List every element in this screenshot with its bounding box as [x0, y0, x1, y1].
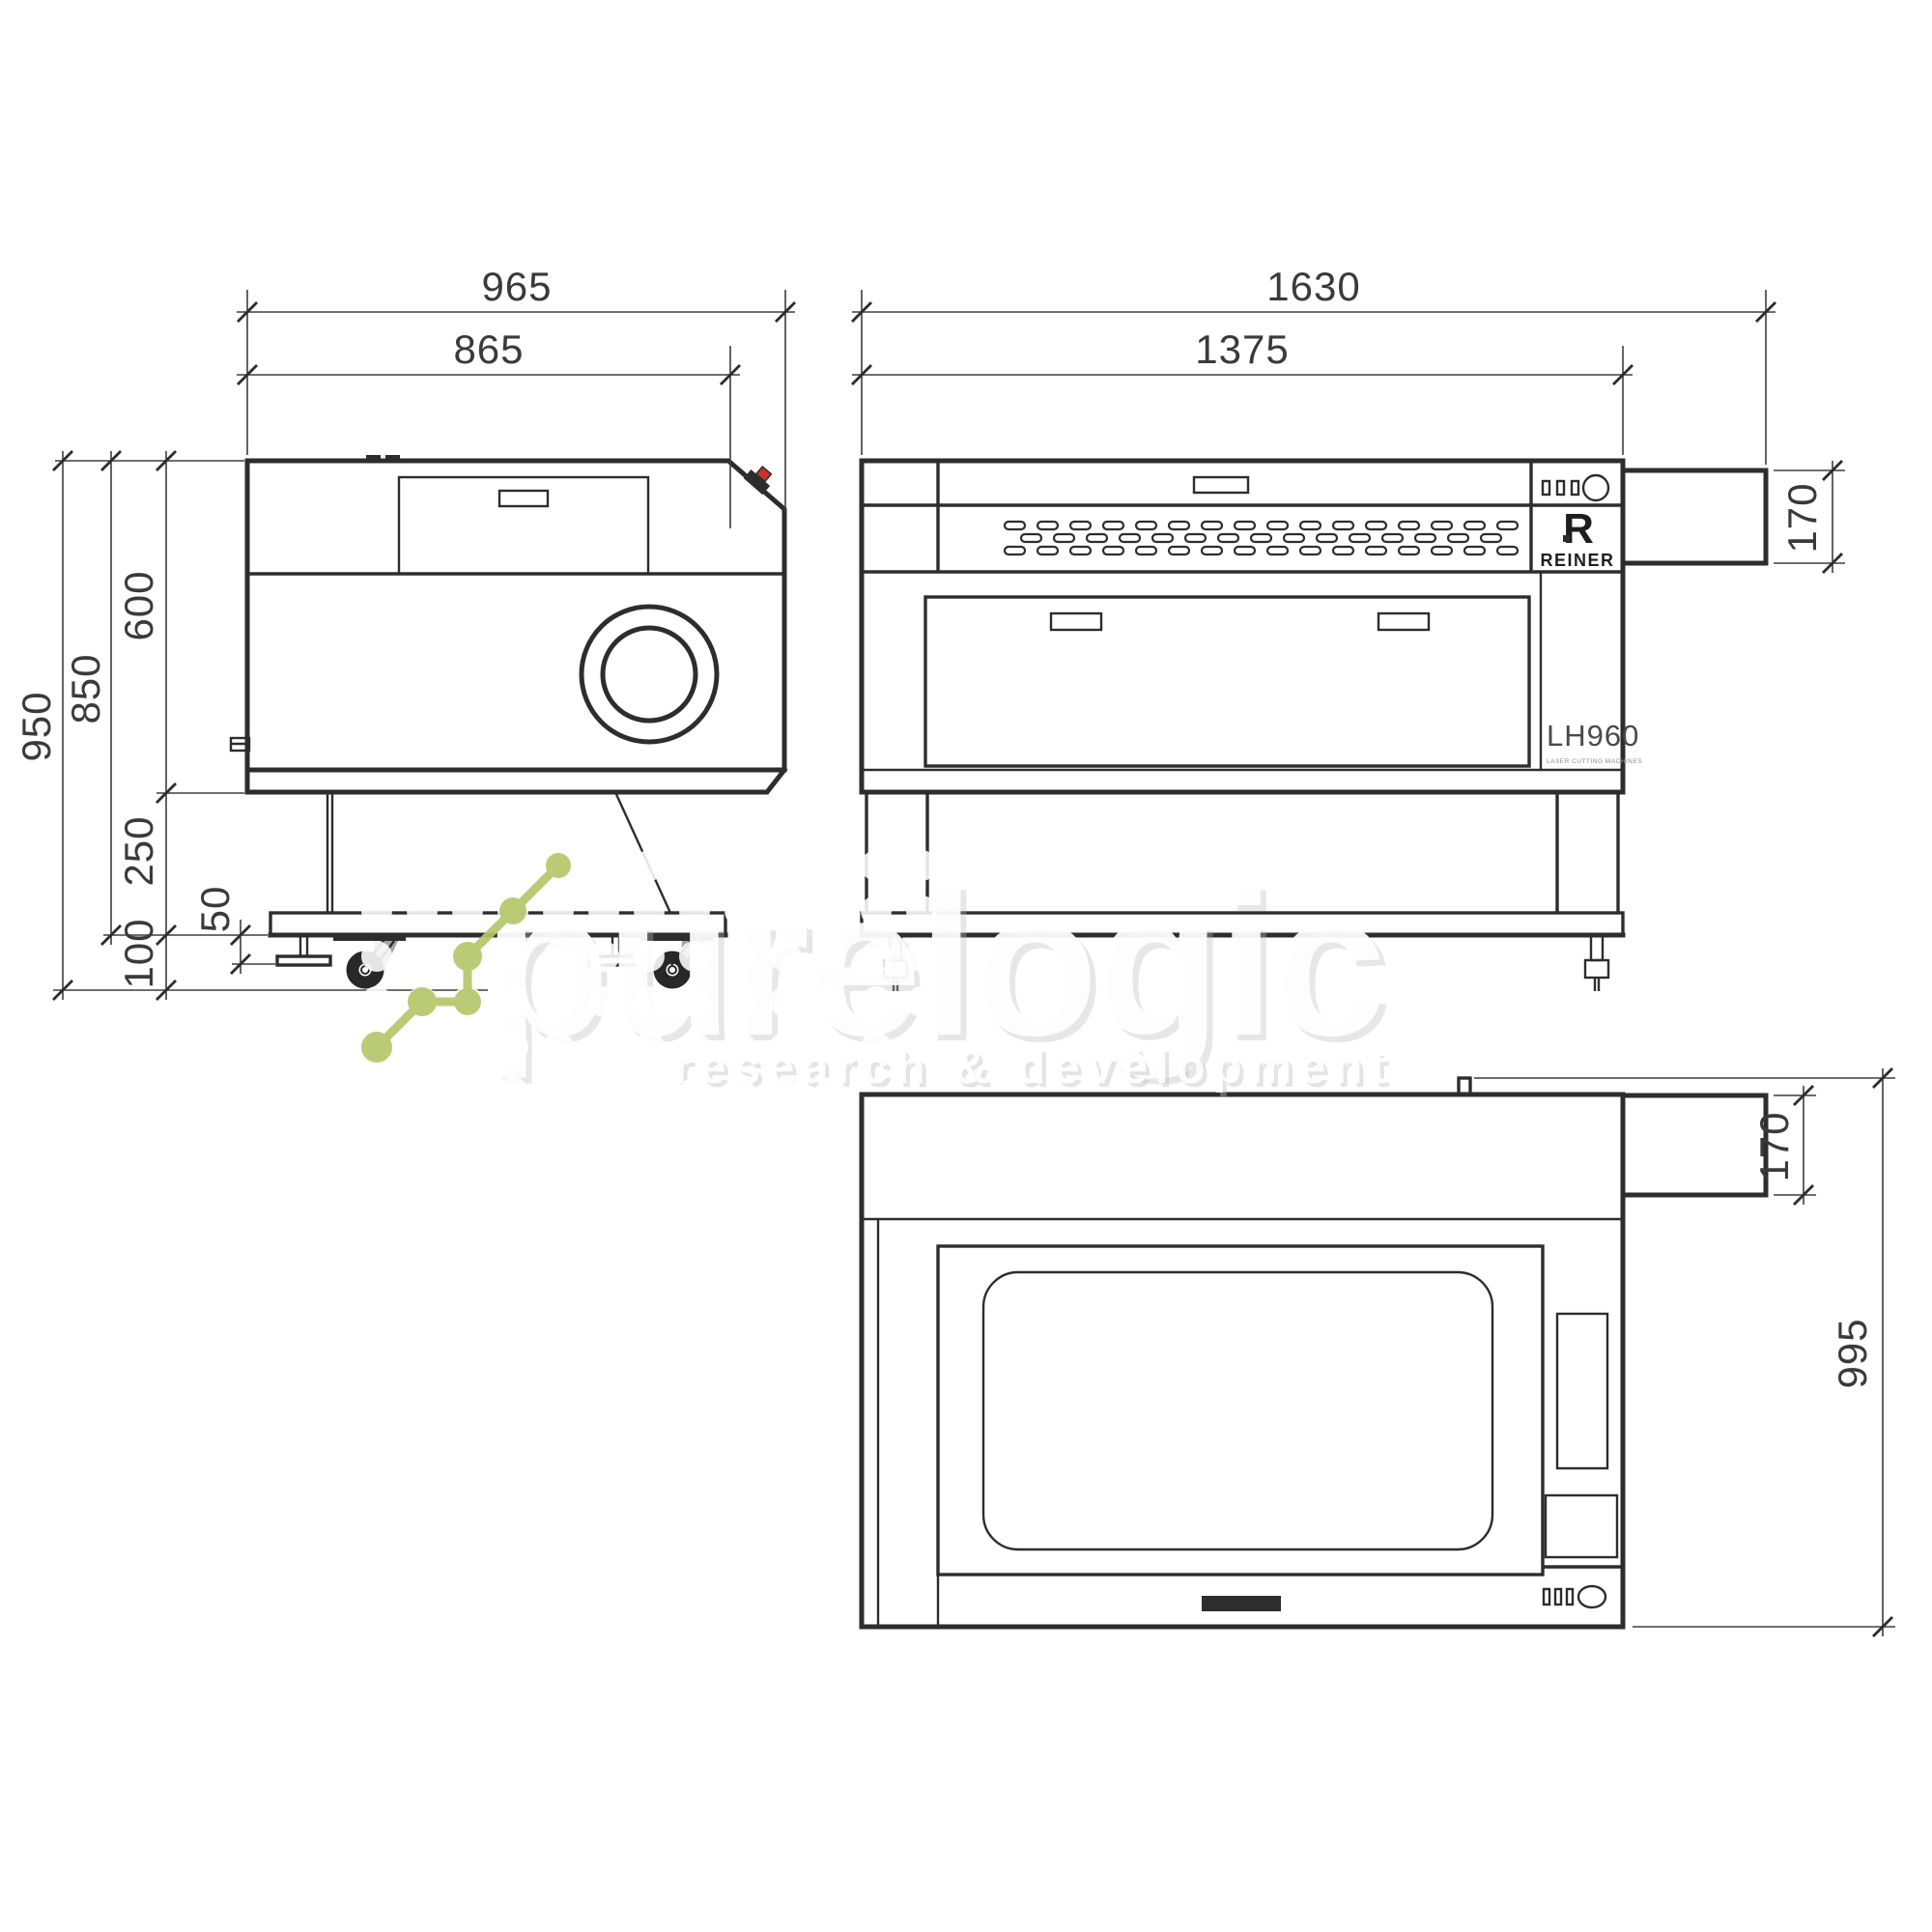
- watermark: purelogic purelogic research & developme…: [361, 846, 1451, 1108]
- top-lid-window: [983, 1272, 1492, 1549]
- dim-front-width-total: 1630: [1266, 264, 1360, 309]
- dim-side-width-total: 965: [481, 264, 552, 309]
- side-front-leg: [327, 792, 332, 913]
- vent-grille: [1005, 522, 1518, 554]
- top-control-panel: [1544, 1586, 1605, 1607]
- side-hinge-right: [385, 455, 400, 461]
- model-sublabel: LASER CUTTING MACHINES: [1547, 758, 1642, 765]
- dim-top-depth-total: 995: [1830, 1318, 1875, 1388]
- top-front-handle: [1202, 1596, 1281, 1611]
- top-body-outline: [862, 1094, 1623, 1627]
- dim-side-height-stand: 250: [116, 815, 161, 886]
- dim-side-width-body: 865: [453, 327, 524, 372]
- door-handle-right: [1378, 613, 1429, 630]
- front-control-panel: [1543, 475, 1608, 500]
- top-exhaust-stub: [1459, 1078, 1470, 1094]
- front-foot-right: [1585, 935, 1608, 991]
- dim-front-width-body: 1375: [1195, 327, 1289, 372]
- side-porthole-inner: [603, 628, 696, 721]
- top-exhaust-duct: [1623, 1095, 1766, 1195]
- front-body-outline: [862, 461, 1623, 792]
- brand-dot: [1563, 535, 1570, 542]
- top-right-panel: [1557, 1314, 1607, 1468]
- power-knob: [1583, 475, 1608, 500]
- dim-side-height-clearance: 100: [116, 918, 161, 988]
- front-door: [925, 597, 1529, 766]
- model-label: LH960: [1547, 719, 1639, 753]
- emergency-stop-button: [744, 462, 777, 495]
- dim-side-height-feet: 50: [192, 886, 238, 933]
- front-top-handle: [1194, 477, 1248, 493]
- side-foot-left: [277, 935, 330, 965]
- top-view: [862, 1078, 1766, 1627]
- dim-side-height-total: 950: [14, 691, 59, 761]
- front-exhaust-duct: [1623, 470, 1766, 563]
- technical-drawing-page: R REINER LH960 LASER CUTTING MACHINES: [0, 0, 1932, 1932]
- dim-side-height-upper: 850: [63, 653, 108, 724]
- top-right-nameplate: [1546, 1495, 1617, 1557]
- brand-name: REINER: [1540, 551, 1614, 570]
- brand-letter: R: [1563, 505, 1594, 553]
- side-hinge-left: [366, 455, 381, 461]
- side-lid-handle: [499, 491, 548, 506]
- button-3: [1572, 481, 1578, 495]
- button-2: [1557, 481, 1564, 495]
- laser-machine-dimension-drawing: R REINER LH960 LASER CUTTING MACHINES: [0, 0, 1932, 1932]
- button-1: [1543, 481, 1549, 495]
- dim-front-exhaust-height: 170: [1779, 482, 1825, 553]
- watermark-square-right: [1408, 1041, 1451, 1084]
- door-handle-left: [1051, 613, 1101, 630]
- brand-logo: R REINER: [1540, 505, 1614, 570]
- top-lid: [938, 1246, 1543, 1575]
- side-body-outline: [247, 461, 784, 792]
- dim-side-height-body: 600: [116, 570, 161, 640]
- dim-top-exhaust-width: 170: [1751, 1111, 1797, 1181]
